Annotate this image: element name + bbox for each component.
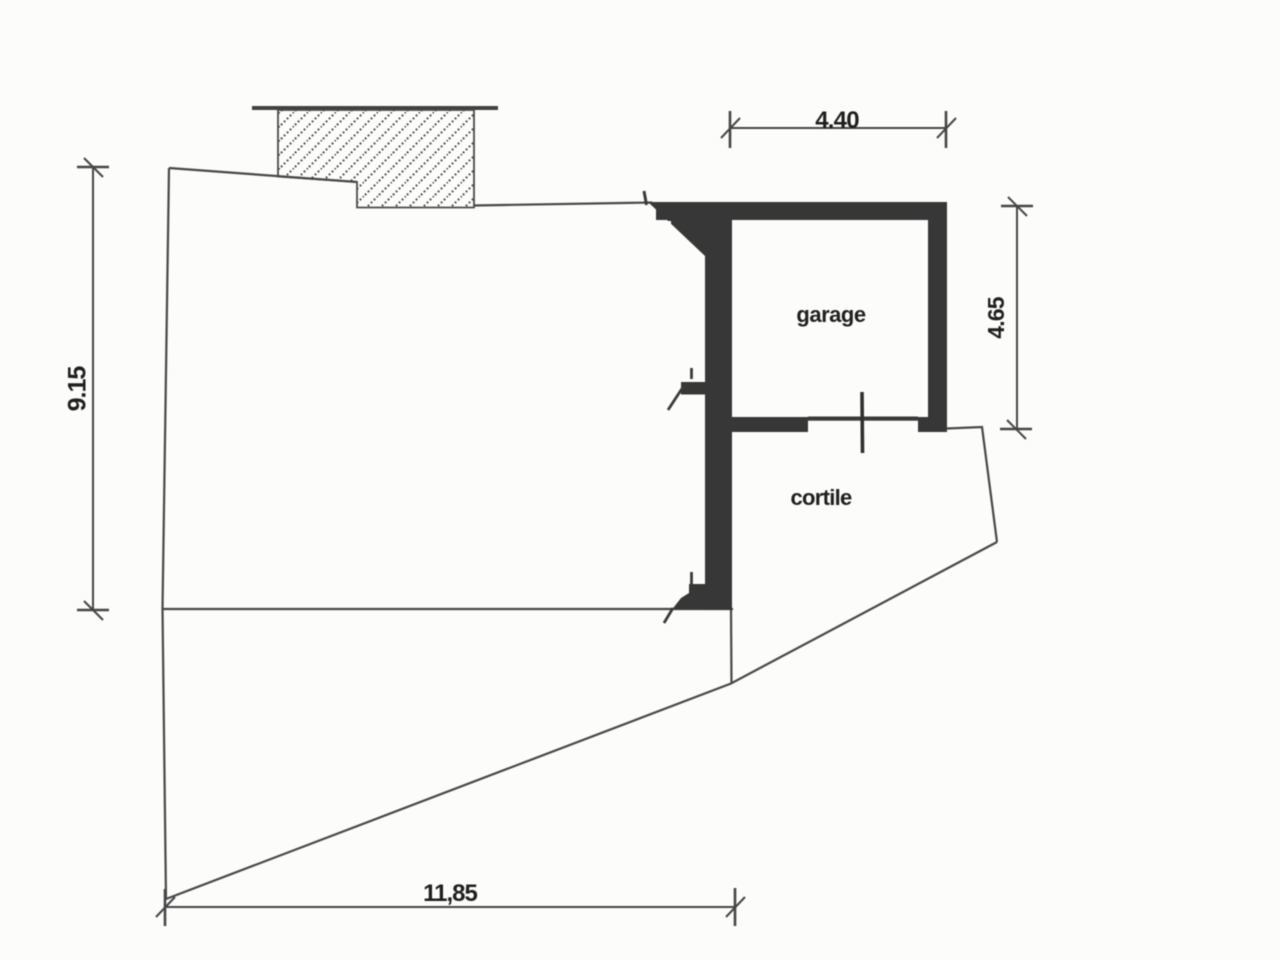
- svg-text:cortile: cortile: [790, 485, 852, 510]
- svg-text:garage: garage: [796, 302, 865, 327]
- svg-text:9.15: 9.15: [64, 366, 92, 412]
- svg-text:4.40: 4.40: [815, 107, 859, 134]
- svg-text:4.65: 4.65: [983, 296, 1009, 339]
- svg-text:11,85: 11,85: [423, 880, 477, 907]
